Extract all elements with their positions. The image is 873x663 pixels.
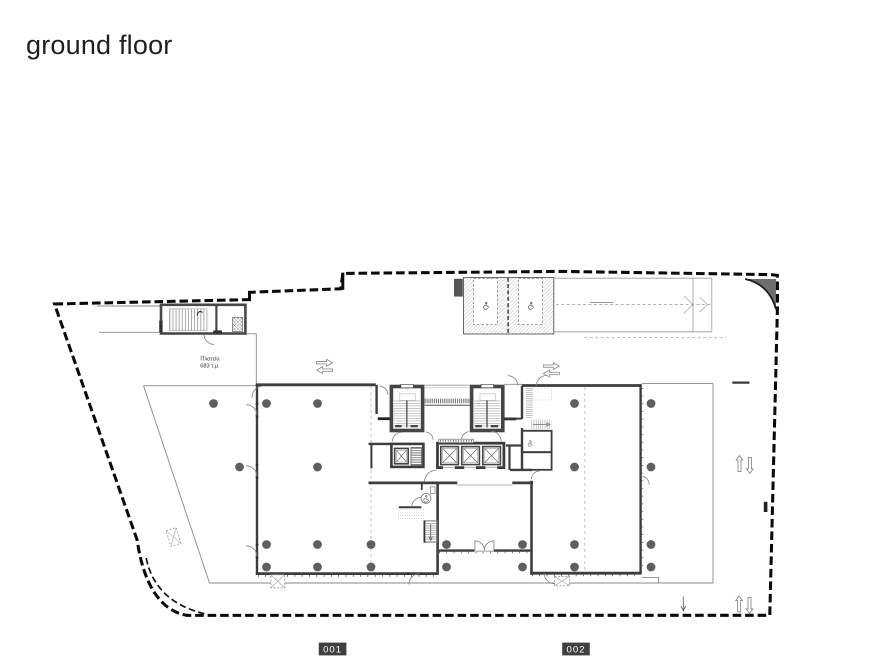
svg-text:001: 001 [323,645,342,656]
svg-text:683 τ.μ.: 683 τ.μ. [200,364,220,370]
svg-text:Πλατεία: Πλατεία [200,357,220,363]
svg-text:ground floor: ground floor [26,30,173,60]
svg-text:002: 002 [566,645,585,656]
